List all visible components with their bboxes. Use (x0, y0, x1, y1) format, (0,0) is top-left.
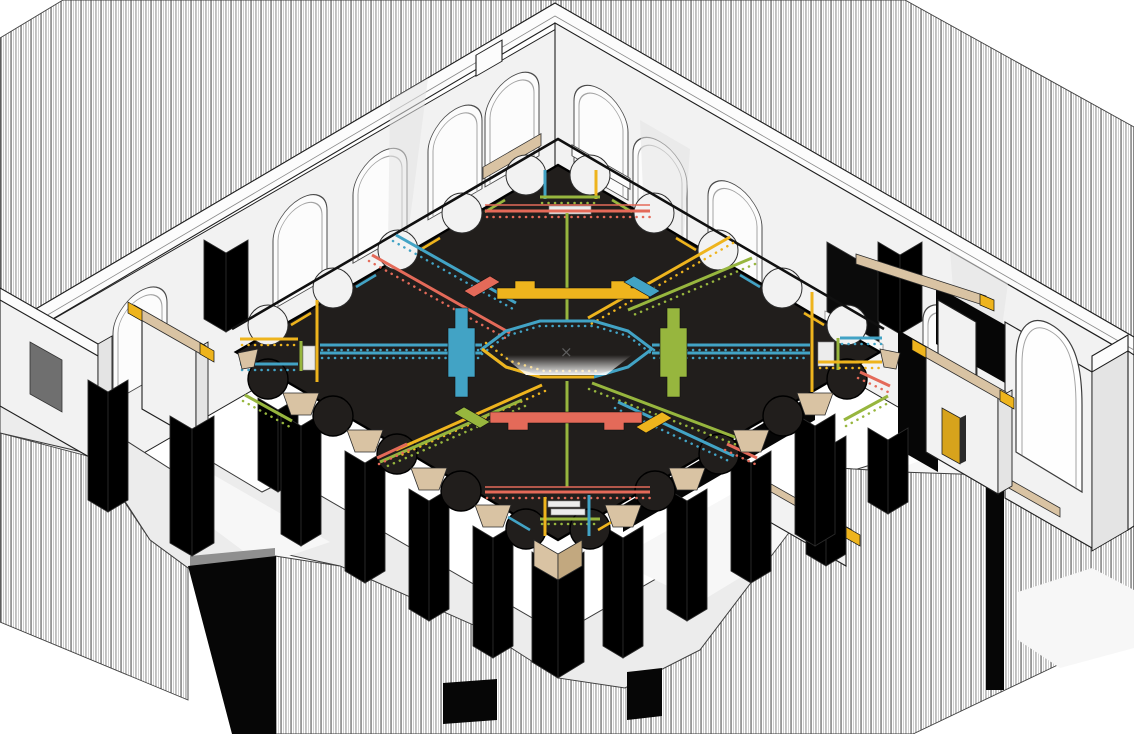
left-wall-pilaster (204, 240, 248, 332)
void-opening (188, 556, 276, 734)
pillar (603, 526, 643, 658)
white-coffer-panel (548, 501, 580, 507)
pillar (345, 451, 385, 583)
doorway-return-block (1092, 351, 1128, 551)
void-opening (443, 679, 497, 724)
pillar (667, 489, 707, 621)
gold-door-reveal (960, 415, 966, 464)
pillar (731, 451, 771, 583)
center-mark: × (560, 343, 573, 361)
right-wall-pilaster (878, 242, 922, 334)
gold-door (942, 408, 960, 464)
pillar (795, 414, 835, 546)
pillar (473, 526, 513, 658)
white-coffer-panel (551, 509, 585, 515)
pillar (281, 414, 321, 546)
void-opening (986, 474, 1004, 690)
drawing-canvas: × (0, 0, 1134, 734)
pillar (409, 489, 449, 621)
white-coffer-panel (303, 346, 315, 370)
void-opening (627, 668, 662, 720)
axonometric-illustration: × (0, 0, 1134, 734)
